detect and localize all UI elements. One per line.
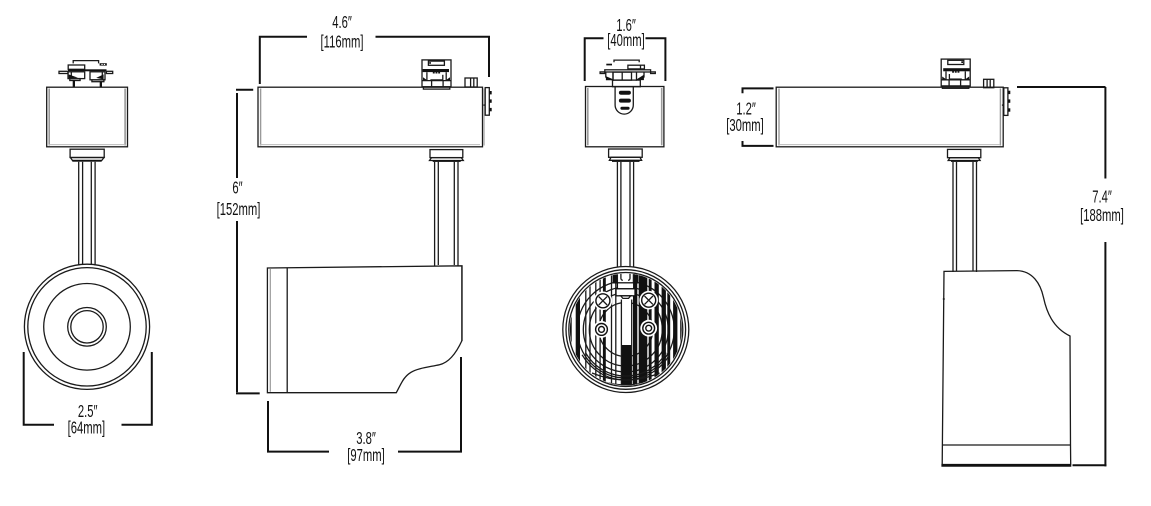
svg-text:[116mm]: [116mm] bbox=[321, 32, 364, 52]
svg-text:[152mm]: [152mm] bbox=[217, 199, 261, 219]
svg-text:[97mm]: [97mm] bbox=[347, 445, 384, 465]
svg-text:[30mm]: [30mm] bbox=[726, 115, 763, 135]
svg-text:[188mm]: [188mm] bbox=[1080, 205, 1124, 225]
svg-text:4.6″: 4.6″ bbox=[332, 12, 352, 32]
svg-text:6″: 6″ bbox=[232, 178, 243, 198]
svg-text:[40mm]: [40mm] bbox=[607, 30, 644, 50]
svg-text:[64mm]: [64mm] bbox=[68, 418, 105, 438]
svg-text:7.4″: 7.4″ bbox=[1092, 187, 1112, 207]
